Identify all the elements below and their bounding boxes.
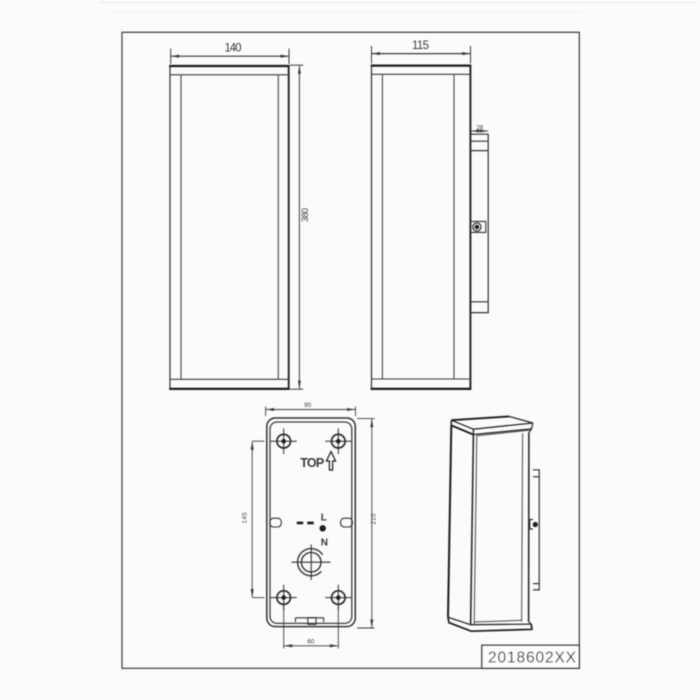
svg-text:210: 210 (372, 513, 378, 525)
svg-text:380: 380 (300, 208, 310, 222)
svg-text:TOP: TOP (300, 456, 324, 470)
svg-text:N: N (321, 537, 328, 548)
svg-text:2018602XX: 2018602XX (488, 649, 577, 666)
svg-text:28: 28 (476, 124, 483, 131)
svg-text:90: 90 (304, 402, 311, 409)
svg-text:60: 60 (307, 639, 314, 646)
svg-text:145: 145 (243, 512, 249, 524)
svg-text:L: L (321, 513, 327, 524)
svg-text:140: 140 (225, 43, 242, 55)
svg-text:115: 115 (412, 40, 429, 52)
